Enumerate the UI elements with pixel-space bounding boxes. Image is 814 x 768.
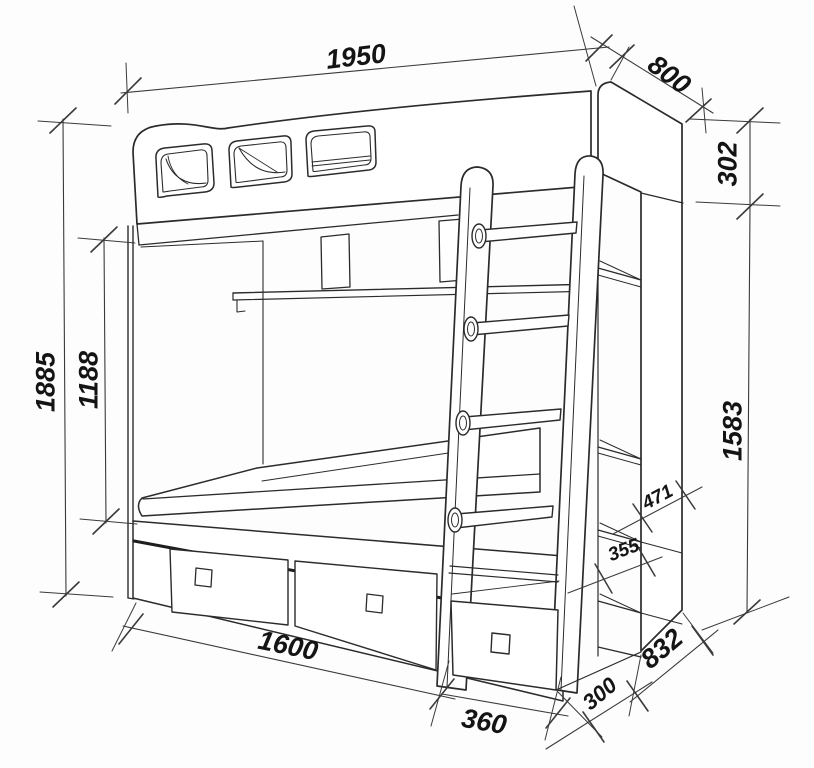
bunk-bed-blueprint: 1950 800 302 1885 1188 1583 471 355 1600… — [0, 0, 814, 768]
guard-rail-panel — [133, 91, 591, 224]
ladder-right-rail — [551, 156, 603, 693]
ladder — [437, 156, 641, 693]
dim-label-side-unit-height: 1583 — [718, 401, 749, 461]
bed-line-drawing — [0, 0, 814, 768]
side-shelf-unit — [598, 82, 683, 657]
upper-bunk — [133, 91, 591, 464]
bed-drawer-1 — [170, 549, 288, 625]
dim-label-guard-rail-height: 302 — [713, 141, 744, 186]
shelf-divider-1 — [321, 234, 350, 289]
dim-label-overall-height: 1885 — [31, 352, 62, 412]
ladder-drawer-handle — [491, 633, 510, 654]
dim-label-bunk-clearance: 1188 — [74, 351, 105, 409]
